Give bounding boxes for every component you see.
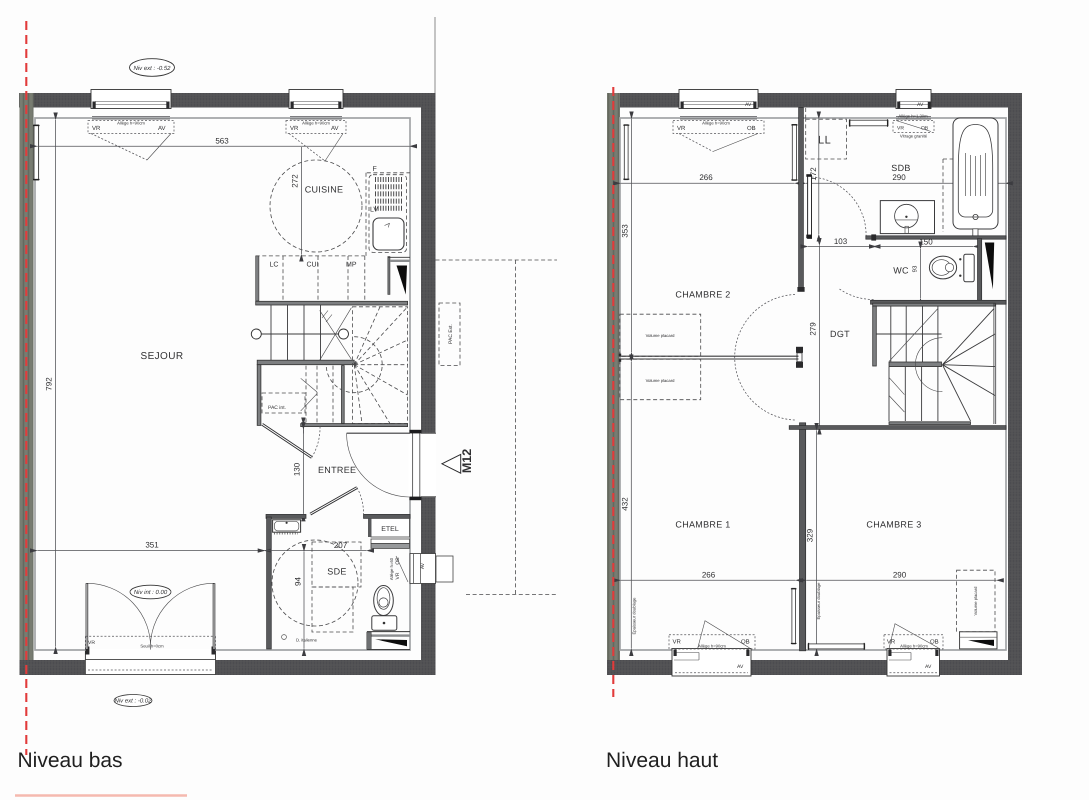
svg-text:Niv ext : -0.02: Niv ext : -0.02 — [114, 698, 152, 705]
svg-text:DGT: DGT — [830, 329, 850, 339]
svg-text:OB: OB — [930, 639, 939, 646]
svg-text:LL: LL — [818, 135, 831, 147]
svg-text:Niveau haut: Niveau haut — [606, 749, 718, 772]
svg-text:Niveau bas: Niveau bas — [18, 749, 123, 772]
svg-text:SEJOUR: SEJOUR — [141, 351, 184, 362]
svg-text:Volume placard: Volume placard — [646, 333, 676, 338]
svg-text:CHAMBRE 3: CHAMBRE 3 — [866, 520, 921, 530]
svg-text:Epaisseur doublage: Epaisseur doublage — [632, 597, 637, 635]
svg-text:LC: LC — [270, 262, 279, 269]
svg-text:432: 432 — [620, 497, 629, 511]
svg-text:M12: M12 — [460, 449, 474, 473]
svg-text:D. italienne: D. italienne — [296, 638, 318, 643]
svg-text:VR: VR — [897, 126, 904, 132]
svg-text:279: 279 — [808, 322, 817, 336]
svg-text:150: 150 — [919, 238, 933, 247]
svg-text:MP: MP — [346, 262, 357, 269]
svg-text:VR: VR — [92, 125, 101, 132]
svg-text:272: 272 — [291, 174, 300, 188]
svg-text:Allège h=1.30m: Allège h=1.30m — [898, 114, 928, 119]
svg-text:Allège h=90cm: Allège h=90cm — [117, 121, 145, 126]
svg-text:Allège h=90cm: Allège h=90cm — [302, 121, 330, 126]
svg-text:PAC Ext.: PAC Ext. — [448, 324, 454, 344]
svg-text:329: 329 — [806, 528, 815, 542]
svg-text:AV: AV — [420, 562, 426, 569]
svg-text:PAC int.: PAC int. — [268, 405, 286, 411]
svg-text:ENTREE: ENTREE — [318, 465, 356, 475]
svg-text:563: 563 — [215, 136, 229, 145]
svg-text:266: 266 — [699, 173, 713, 182]
svg-text:SDE: SDE — [327, 567, 346, 577]
svg-text:VR: VR — [673, 639, 682, 646]
svg-text:103: 103 — [834, 237, 848, 246]
svg-text:CUI: CUI — [307, 262, 319, 269]
svg-text:351: 351 — [145, 541, 159, 550]
svg-text:VR: VR — [677, 125, 686, 132]
svg-text:Niv int : 0.00: Niv int : 0.00 — [134, 589, 168, 596]
svg-text:VR: VR — [88, 640, 95, 646]
svg-text:266: 266 — [702, 570, 716, 579]
svg-text:CHAMBRE 2: CHAMBRE 2 — [675, 290, 730, 300]
svg-text:Niv ext : -0.52: Niv ext : -0.52 — [133, 65, 171, 72]
svg-text:ETEL: ETEL — [381, 526, 399, 533]
svg-text:AV: AV — [331, 125, 339, 132]
svg-text:Allège h=90cm: Allège h=90cm — [900, 644, 928, 649]
svg-text:792: 792 — [45, 377, 54, 391]
svg-text:OB: OB — [747, 125, 756, 132]
svg-text:Volume placard: Volume placard — [646, 378, 676, 383]
svg-text:290: 290 — [893, 570, 907, 579]
svg-text:F: F — [373, 166, 377, 173]
svg-text:94: 94 — [294, 577, 303, 586]
svg-text:Allège h=90cm: Allège h=90cm — [698, 644, 726, 649]
svg-text:93: 93 — [912, 265, 919, 272]
svg-text:353: 353 — [621, 224, 630, 238]
svg-text:LV: LV — [370, 207, 378, 214]
svg-text:CUISINE: CUISINE — [305, 185, 344, 195]
svg-text:VR: VR — [290, 125, 299, 132]
svg-text:130: 130 — [292, 462, 301, 476]
svg-text:Allège h=90cm: Allège h=90cm — [702, 121, 730, 126]
svg-text:WC: WC — [893, 266, 909, 276]
svg-text:AV: AV — [158, 125, 166, 132]
svg-text:AV: AV — [737, 664, 744, 670]
svg-text:VR: VR — [395, 572, 401, 579]
svg-text:AV: AV — [925, 664, 932, 670]
svg-text:Seuil h=0cm: Seuil h=0cm — [140, 644, 164, 649]
svg-text:SDB: SDB — [891, 163, 910, 173]
svg-text:AV: AV — [917, 102, 924, 108]
svg-text:AV: AV — [745, 102, 752, 108]
svg-text:Allège h=60: Allège h=60 — [389, 557, 394, 580]
svg-text:290: 290 — [892, 173, 906, 182]
svg-text:Vitrage granité: Vitrage granité — [900, 134, 928, 139]
svg-text:Epaisseur doublage: Epaisseur doublage — [816, 582, 821, 620]
svg-text:Volume placard: Volume placard — [973, 586, 978, 616]
svg-text:CHAMBRE 1: CHAMBRE 1 — [675, 520, 730, 530]
svg-text:OB: OB — [741, 639, 750, 646]
